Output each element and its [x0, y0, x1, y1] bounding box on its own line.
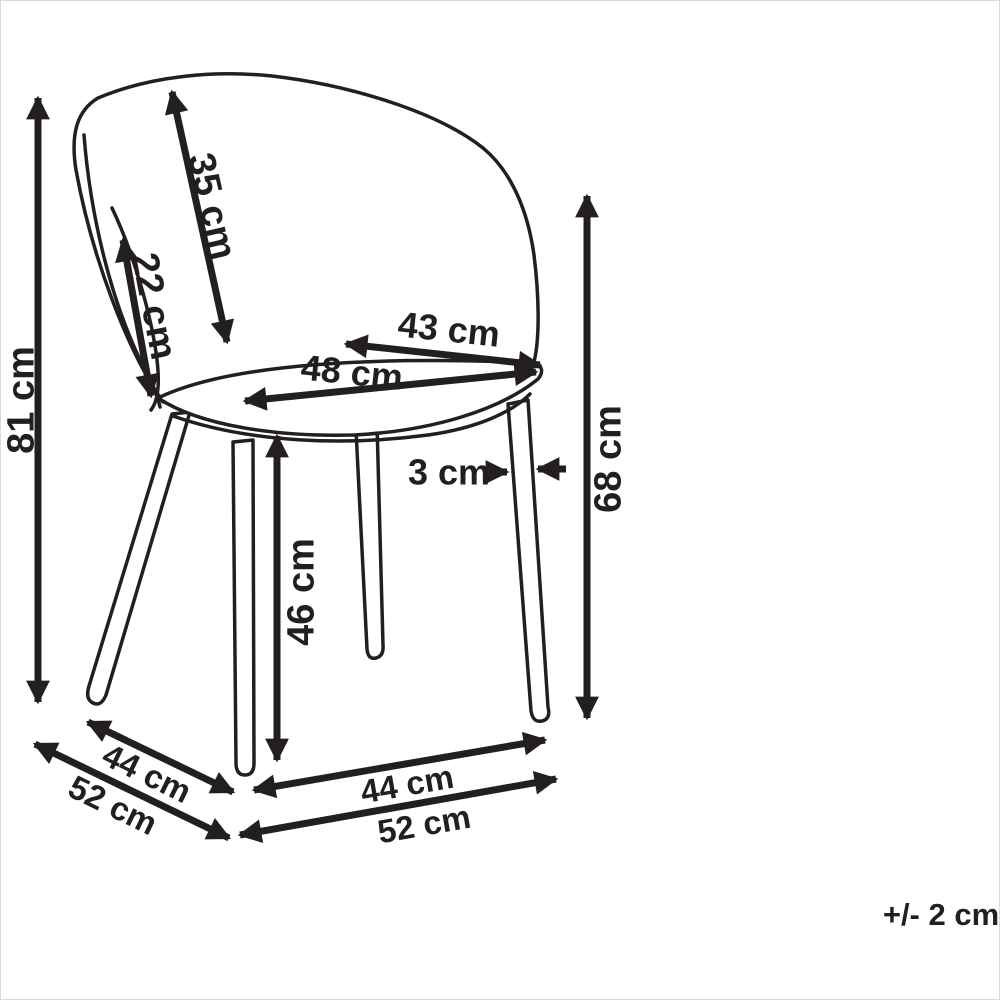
dimension-diagram: 81 cm 35 cm 22 cm 43 cm 48 cm 68 cm 3 cm… [0, 0, 1000, 1000]
chair-leg-back-left [88, 412, 190, 704]
tolerance-note: +/- 2 cm [883, 897, 999, 932]
chair-leg-front-right [508, 400, 549, 721]
chair-leg-back-right [356, 424, 383, 658]
dim-label-seat-height: 46 cm [280, 538, 322, 646]
dim-label-back-height-from-floor: 68 cm [587, 405, 629, 513]
dim-label-overall-height: 81 cm [0, 346, 42, 454]
chair-drawing [74, 74, 549, 775]
chair-leg-front-left [233, 440, 254, 775]
dim-label-leg-thickness: 3 cm [408, 452, 490, 493]
chair-dimension-drawing: 81 cm 35 cm 22 cm 43 cm 48 cm 68 cm 3 cm… [0, 0, 1000, 1000]
